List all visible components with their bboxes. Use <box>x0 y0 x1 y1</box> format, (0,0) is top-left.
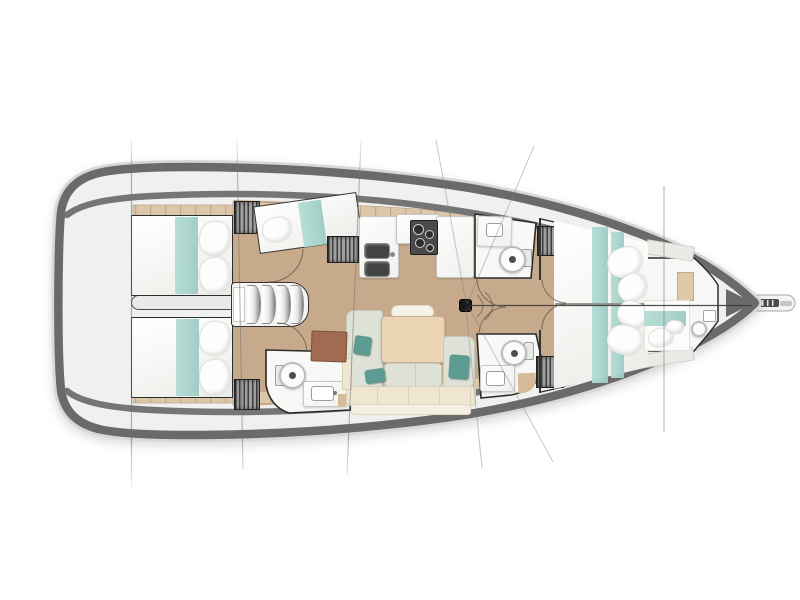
forepeak-locker <box>677 272 694 301</box>
mast <box>459 299 472 312</box>
salon-shelf <box>342 358 352 390</box>
forward-shelf <box>645 239 695 261</box>
head-basin <box>486 223 503 237</box>
head-basin <box>311 386 334 401</box>
stove-burner <box>413 224 424 235</box>
salon-table <box>381 316 445 363</box>
toilet-flush <box>509 256 516 263</box>
bulkhead <box>539 218 541 280</box>
aft-cabin-starboard-runner <box>176 319 199 396</box>
teal-pillow <box>364 368 386 385</box>
owner-berth-runner <box>592 227 608 383</box>
salon-bench-back <box>351 404 471 415</box>
bulkhead <box>539 330 541 393</box>
step-tread <box>291 285 304 324</box>
engine-compartment <box>131 295 243 310</box>
forepeak-toilet <box>691 321 707 337</box>
head-faucet <box>333 391 337 395</box>
stove-burner <box>415 238 425 248</box>
salon-mid-cushions <box>384 363 442 387</box>
step-tread <box>277 285 291 324</box>
galley-faucet <box>390 252 395 257</box>
galley-counter-forward <box>436 216 474 278</box>
companionway-landing <box>233 287 245 322</box>
galley-sink <box>364 243 390 259</box>
wardrobe-aft-starboard <box>234 379 260 410</box>
salon-bench <box>346 386 476 406</box>
step-tread <box>247 285 261 324</box>
toilet-flush <box>511 350 518 357</box>
teal-pillow <box>353 335 372 356</box>
shower-seat <box>518 373 537 394</box>
step-tread <box>262 285 276 324</box>
teal-pillow <box>448 354 470 379</box>
galley-sink <box>364 261 390 277</box>
stove-burner <box>426 244 434 252</box>
forepeak-basin <box>703 310 716 322</box>
yacht-deck-plan <box>0 0 800 600</box>
chart-table <box>310 330 347 362</box>
stove-burner <box>425 230 434 239</box>
wardrobe-mid-port <box>327 236 359 263</box>
toilet-flush <box>289 372 296 379</box>
furniture-layer <box>0 0 800 600</box>
head-basin <box>486 371 505 386</box>
aft-cabin-port-runner <box>175 217 198 294</box>
